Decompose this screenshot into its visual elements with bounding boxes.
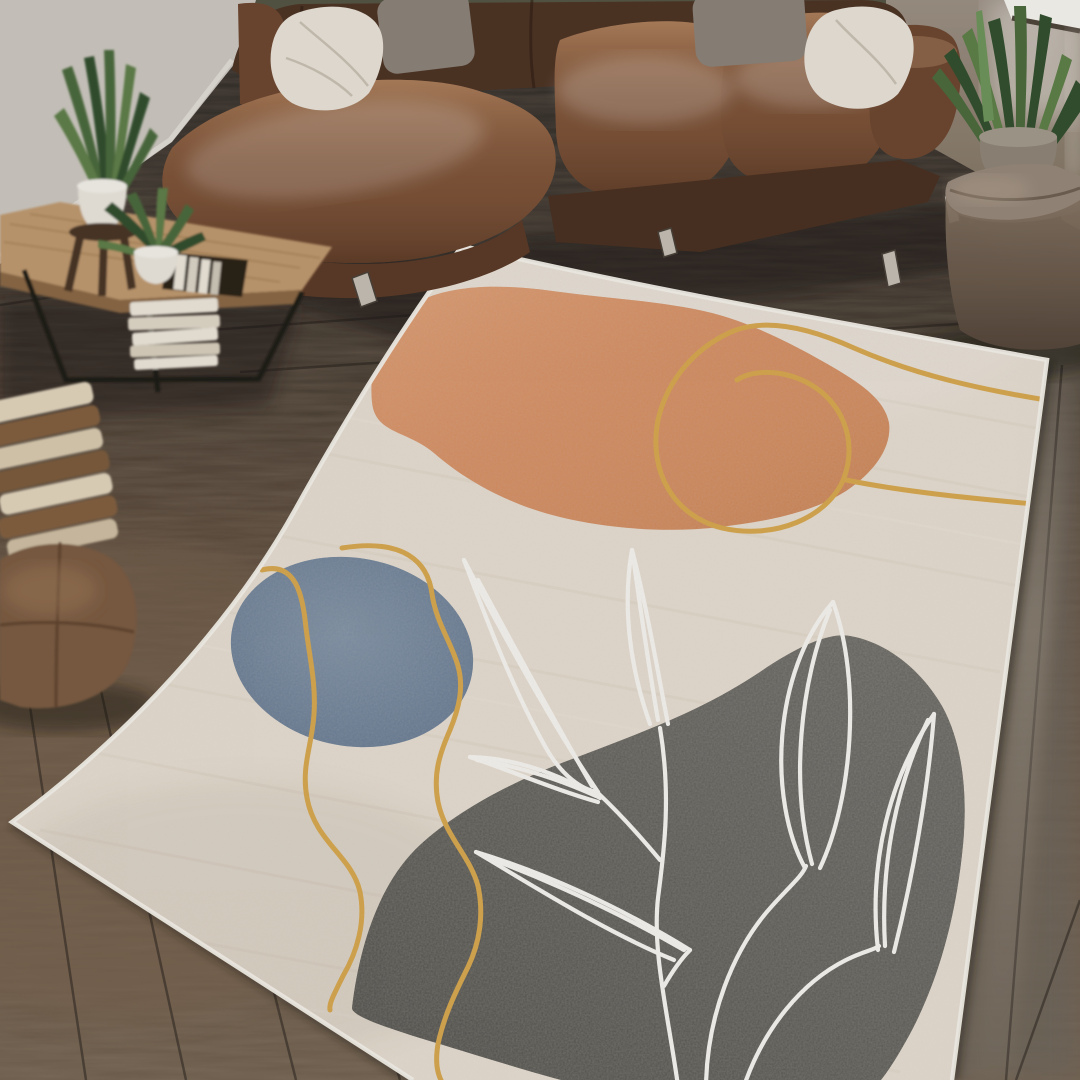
scene: [0, 0, 1080, 1080]
photo-canvas: [0, 0, 1080, 1080]
photo-vignette: [0, 0, 1080, 1080]
